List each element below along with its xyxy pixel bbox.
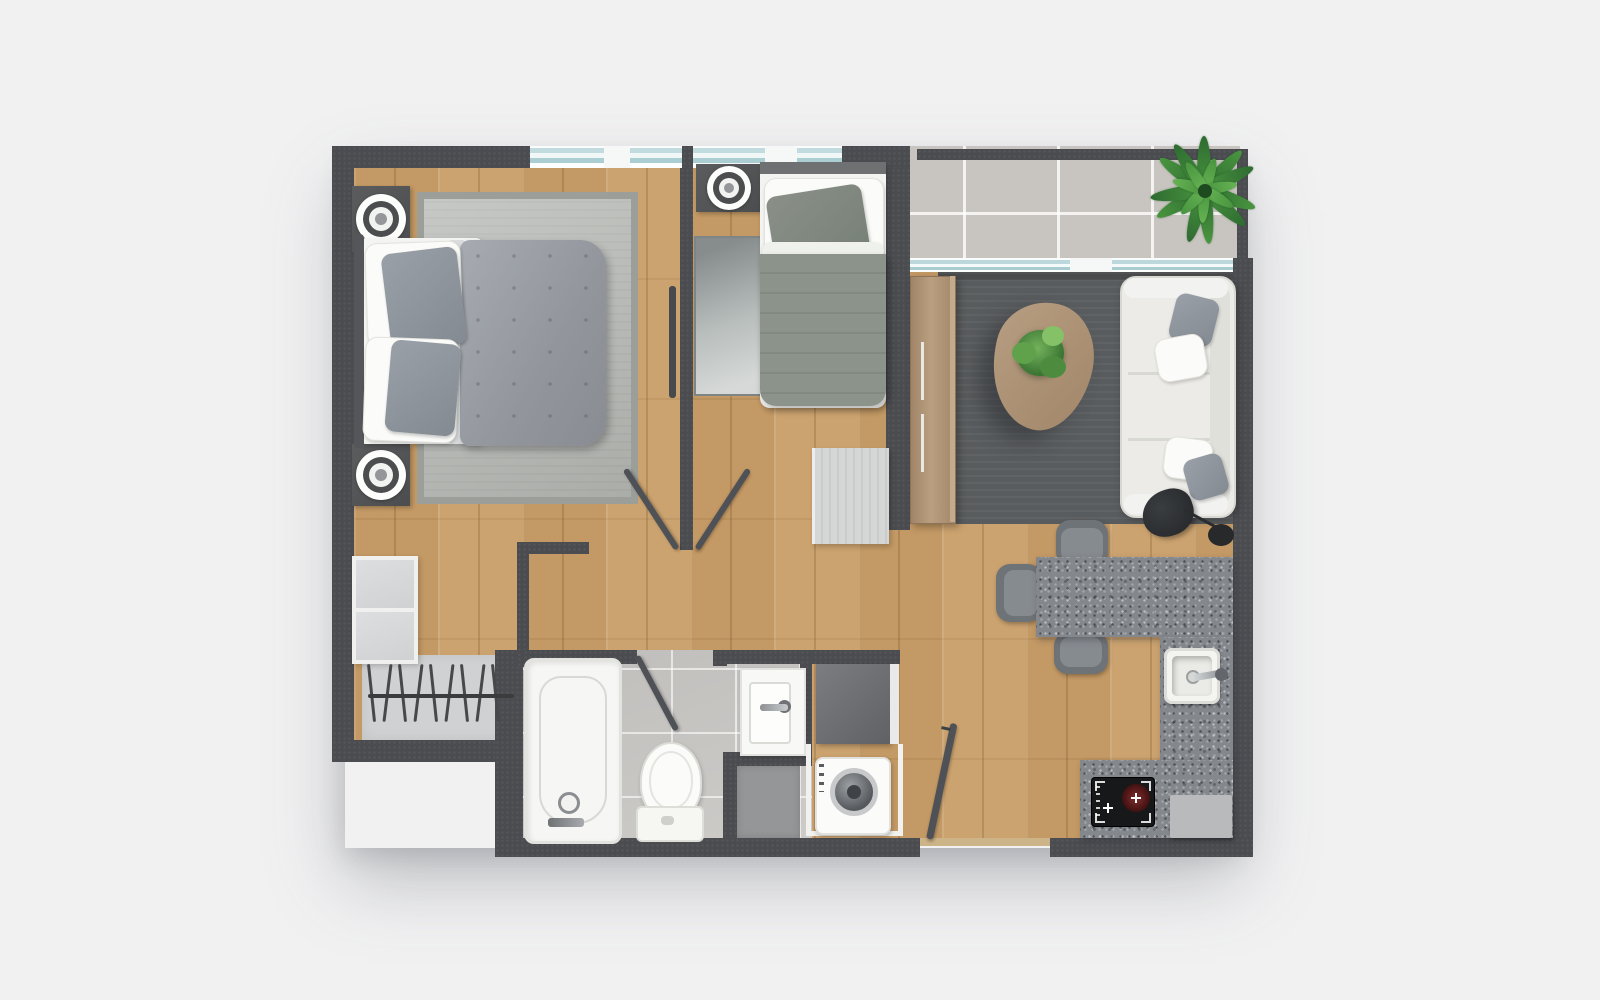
tub-faucet-cross-icon: [558, 792, 580, 814]
lamp-core: [724, 183, 734, 193]
pillow: [1153, 332, 1210, 384]
double-bed-duvet: [460, 240, 606, 446]
window-mullion: [1070, 258, 1112, 272]
wall-top-master: [332, 146, 530, 168]
wall-shaft-left: [723, 766, 737, 838]
wall-bottom-kitchen: [1050, 838, 1253, 857]
wall-closet-bottom: [332, 740, 517, 762]
lamp-core: [375, 213, 387, 225]
hanger-icon: [398, 664, 407, 722]
hanger-icon: [460, 664, 469, 722]
wall-left: [332, 146, 354, 762]
stool-seat: [1060, 637, 1102, 667]
plant-foliage: [1012, 342, 1036, 364]
clothes-hangers: [364, 658, 517, 738]
cooktop: [1092, 778, 1154, 826]
sofa-armrest: [1124, 278, 1228, 298]
stool-seat: [1004, 570, 1038, 616]
entry-threshold: [920, 838, 1050, 846]
shelf-cell: [356, 612, 414, 660]
console-handle: [921, 342, 924, 400]
cooktop-mark: [1141, 813, 1151, 823]
hanger-icon: [444, 664, 454, 722]
background-mask: [350, 762, 496, 848]
hanger-icon: [367, 664, 376, 722]
washer-drum-core: [847, 785, 861, 799]
closet-door-track: [669, 286, 676, 398]
plant-foliage: [1040, 356, 1066, 378]
cooktop-controls: [1096, 786, 1100, 816]
vanity-basin: [749, 682, 791, 744]
shelf-cell: [356, 560, 414, 608]
console-side-panel: [950, 276, 955, 522]
bar-stool: [1054, 632, 1108, 674]
laundry-cabinet: [816, 664, 890, 744]
floor-plan-canvas: [0, 0, 1600, 1000]
single-bed-duvet: [760, 254, 886, 406]
clothes-rail: [368, 694, 514, 698]
hanger-icon: [491, 664, 500, 722]
bedroom2-desk: [812, 448, 889, 544]
wall-right: [1233, 258, 1253, 857]
wall-bedroom2-living: [886, 168, 910, 530]
table-plant-icon: [1012, 326, 1068, 380]
pillow: [380, 246, 467, 353]
tub-faucet-spout-icon: [548, 818, 584, 827]
wall-pier-top: [682, 146, 693, 168]
wall-doorframe-stub: [517, 542, 589, 554]
kitchen-faucet-base: [1215, 668, 1228, 681]
plant-foliage: [1042, 326, 1064, 346]
service-shaft: [737, 766, 800, 838]
hanger-icon: [429, 664, 438, 722]
bedroom2-rug: [694, 236, 768, 396]
lamp-core: [375, 469, 387, 481]
floor-lamp-base: [1208, 524, 1234, 546]
cooktop-mark: [1141, 781, 1151, 791]
burner-cross-icon: [1130, 792, 1142, 804]
laundry-cabinet-edge: [890, 664, 899, 744]
window-mullion: [604, 146, 630, 168]
hanger-icon: [475, 664, 485, 722]
cutting-board: [1170, 795, 1232, 838]
washer-controls: [819, 764, 824, 792]
wall-closet-partition: [517, 542, 529, 667]
wall-bedrooms-partition: [680, 168, 693, 550]
console-handle: [921, 414, 924, 472]
bed-headboard: [760, 162, 886, 174]
kitchen-peninsula-counter: [1036, 557, 1233, 637]
hanger-icon: [382, 664, 392, 722]
hanger-icon: [413, 664, 423, 722]
balcony-plant-icon: [1156, 140, 1252, 240]
vanity-faucet-spout-icon: [760, 704, 788, 711]
pillow: [384, 339, 462, 437]
toilet-seat: [649, 751, 693, 809]
toilet-flush-button: [661, 816, 674, 825]
plant-center: [1198, 184, 1212, 198]
